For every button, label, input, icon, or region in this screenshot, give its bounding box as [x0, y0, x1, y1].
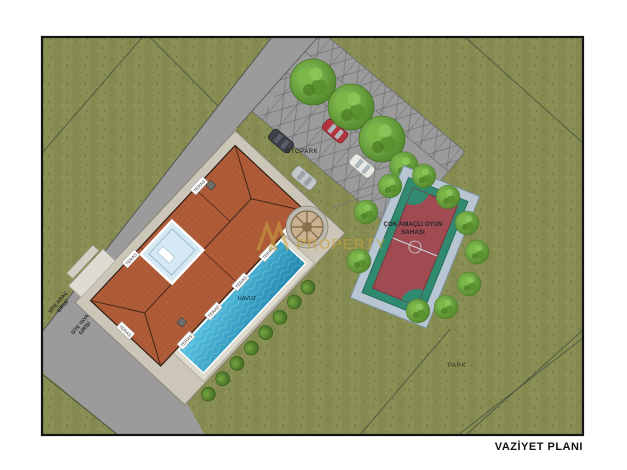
site-plan-page: TERAS TERAS TERAS TERAS TERAS TERAS TERA… [0, 0, 627, 470]
watermark-text: PROPERTY [296, 236, 387, 253]
parking-label: OTOPARK [286, 149, 318, 155]
site-plan-drawing: TERAS TERAS TERAS TERAS TERAS TERAS TERA… [0, 0, 627, 470]
plan-title: VAZİYET PLANI [495, 440, 583, 453]
court-label-line2: SAHASI [401, 229, 425, 236]
court-label-line1: ÇOK AMAÇLI OYUN [384, 221, 443, 228]
park-label: PARK [448, 363, 466, 369]
pool-label: HAVUZ [238, 296, 257, 302]
